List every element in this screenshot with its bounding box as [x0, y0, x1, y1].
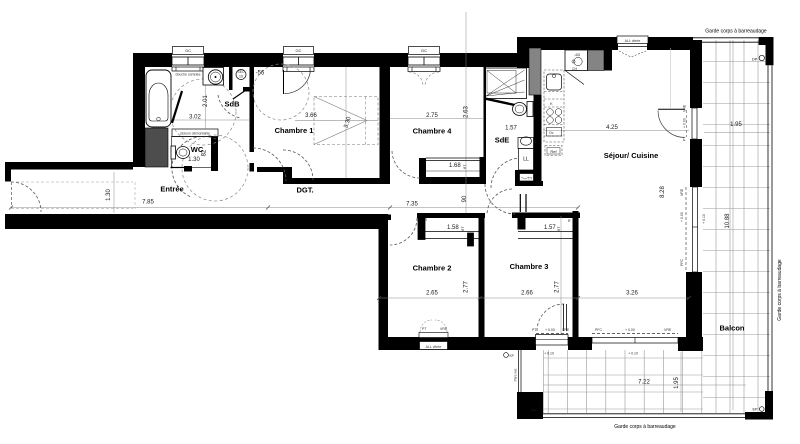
svg-text:7.22: 7.22 — [638, 380, 650, 386]
svg-text:2.75: 2.75 — [426, 113, 438, 119]
svg-text:1.57: 1.57 — [544, 225, 556, 231]
svg-text:67: 67 — [556, 226, 561, 231]
svg-text:-63: -63 — [574, 52, 581, 57]
svg-text:3.26: 3.26 — [626, 291, 638, 297]
svg-text:Chambre 4: Chambre 4 — [413, 127, 453, 136]
svg-text:16: 16 — [239, 75, 243, 79]
svg-text:Ov: Ov — [549, 131, 554, 135]
svg-text:+ 0.00: + 0.00 — [545, 328, 555, 332]
svg-text:Entrée: Entrée — [160, 185, 183, 194]
svg-text:KP: KP — [510, 354, 514, 358]
svg-text:82: 82 — [202, 149, 208, 156]
svg-text:GC: GC — [185, 48, 191, 53]
svg-text:-56: -56 — [256, 71, 265, 77]
svg-text:4.25: 4.25 — [606, 125, 618, 131]
svg-text:LL: LL — [523, 157, 529, 163]
svg-text:+ 0.00: + 0.00 — [680, 212, 684, 222]
svg-text:CH: CH — [572, 67, 578, 71]
svg-text:GC: GC — [296, 48, 302, 53]
svg-text:10.88: 10.88 — [725, 213, 731, 229]
svg-text:cloison démontable: cloison démontable — [180, 132, 210, 136]
svg-text:VRE: VRE — [562, 328, 570, 332]
svg-text:3.02: 3.02 — [189, 115, 201, 121]
svg-text:7.35: 7.35 — [406, 202, 418, 208]
svg-text:GC: GC — [421, 48, 427, 53]
svg-text:Pare vue: Pare vue — [514, 368, 518, 381]
svg-text:8.28: 8.28 — [660, 186, 666, 198]
svg-text:1.68: 1.68 — [449, 163, 461, 169]
svg-text:1.58: 1.58 — [447, 225, 459, 231]
svg-text:DP: DP — [752, 58, 758, 62]
svg-text:1.95: 1.95 — [730, 122, 742, 128]
svg-text:+ 0.00: + 0.00 — [683, 118, 687, 128]
svg-text:Garde corps à barreaudage: Garde corps à barreaudage — [614, 424, 676, 430]
svg-text:ALL vitrée: ALL vitrée — [625, 39, 641, 43]
svg-text:67: 67 — [460, 226, 465, 231]
svg-text:VRE: VRE — [440, 327, 448, 331]
svg-text:K: K — [550, 101, 553, 106]
svg-text:Garde corps à barreaudage: Garde corps à barreaudage — [777, 259, 783, 321]
svg-text:7.85: 7.85 — [142, 200, 154, 206]
svg-text:ALL vitrée: ALL vitrée — [426, 345, 442, 349]
svg-text:1.30: 1.30 — [106, 189, 112, 201]
svg-text:KP: KP — [532, 409, 536, 413]
svg-text:3.66: 3.66 — [305, 113, 317, 119]
svg-text:2.63: 2.63 — [464, 106, 470, 118]
svg-text:+ 0.10: + 0.10 — [628, 352, 638, 356]
svg-text:SdB: SdB — [225, 100, 241, 109]
svg-text:DGT.: DGT. — [296, 186, 313, 195]
svg-text:2.66: 2.66 — [521, 291, 533, 297]
svg-text:1.95: 1.95 — [674, 377, 680, 389]
svg-text:2.77: 2.77 — [555, 281, 561, 293]
svg-text:EP: EP — [753, 408, 759, 412]
svg-text:1.30: 1.30 — [188, 157, 200, 163]
svg-text:douche carrelée: douche carrelée — [175, 73, 200, 77]
svg-text:Chambre 2: Chambre 2 — [413, 264, 452, 273]
svg-text:2.65: 2.65 — [426, 291, 438, 297]
svg-text:90: 90 — [462, 195, 468, 202]
svg-text:Chambre 3: Chambre 3 — [510, 262, 549, 271]
svg-text:67: 67 — [462, 164, 467, 169]
svg-text:SdE: SdE — [495, 136, 510, 145]
svg-text:2.77: 2.77 — [464, 281, 470, 293]
svg-text:Balcon: Balcon — [719, 324, 744, 333]
svg-text:PFC: PFC — [680, 259, 684, 266]
svg-text:1.57: 1.57 — [505, 126, 517, 132]
svg-text:VRE: VRE — [680, 188, 684, 196]
svg-text:SEC: SEC — [237, 70, 245, 74]
svg-text:Chambre 1: Chambre 1 — [275, 126, 314, 135]
svg-text:Séjour/ Cuisine: Séjour/ Cuisine — [604, 151, 659, 160]
svg-text:+ 0.10: + 0.10 — [702, 214, 706, 224]
svg-text:2.01: 2.01 — [203, 95, 209, 107]
svg-text:Garde corps à barreaudage: Garde corps à barreaudage — [705, 29, 767, 35]
svg-text:+ 0.00: + 0.00 — [625, 328, 635, 332]
svg-text:VRE: VRE — [664, 328, 672, 332]
svg-text:VRE: VRE — [683, 104, 687, 112]
svg-text:PFC: PFC — [595, 328, 602, 332]
svg-text:Ref: Ref — [550, 149, 557, 154]
svg-text:+ 0.10: + 0.10 — [544, 352, 554, 356]
